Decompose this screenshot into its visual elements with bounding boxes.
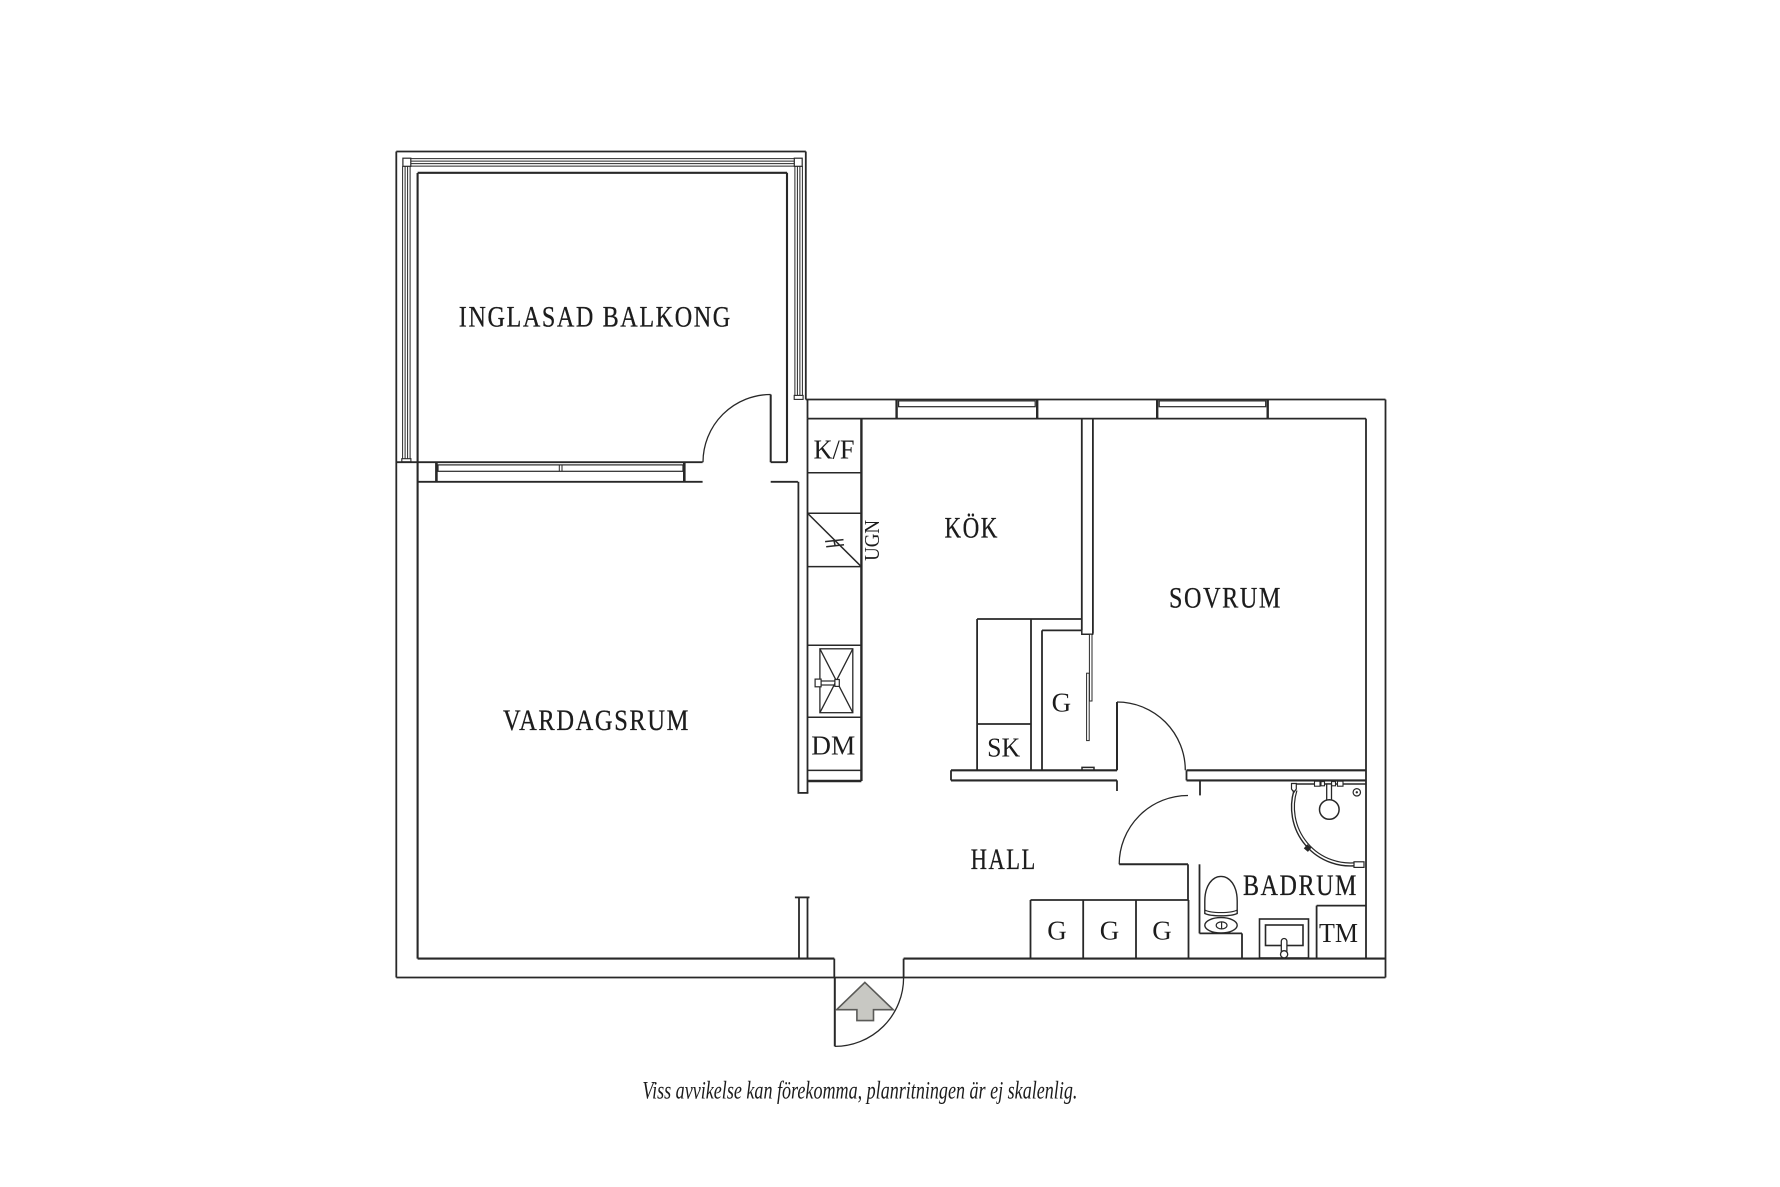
svg-text:K/F: K/F <box>814 435 855 465</box>
svg-text:SOVRUM: SOVRUM <box>1169 582 1282 615</box>
svg-text:SK: SK <box>987 733 1020 763</box>
svg-text:KÖK: KÖK <box>944 512 999 545</box>
svg-text:G: G <box>1152 916 1172 946</box>
svg-text:VARDAGSRUM: VARDAGSRUM <box>503 704 690 737</box>
svg-text:UGN: UGN <box>860 520 884 561</box>
svg-text:TM: TM <box>1319 918 1358 948</box>
svg-text:DM: DM <box>811 731 855 761</box>
svg-text:HALL: HALL <box>971 843 1037 876</box>
svg-text:Viss avvikelse kan förekomma,: Viss avvikelse kan förekomma, planritnin… <box>642 1078 1077 1105</box>
svg-text:INGLASAD BALKONG: INGLASAD BALKONG <box>459 301 732 334</box>
svg-text:BADRUM: BADRUM <box>1243 869 1358 902</box>
svg-text:G: G <box>1047 916 1067 946</box>
svg-text:G: G <box>1052 688 1072 718</box>
svg-text:G: G <box>1100 916 1120 946</box>
